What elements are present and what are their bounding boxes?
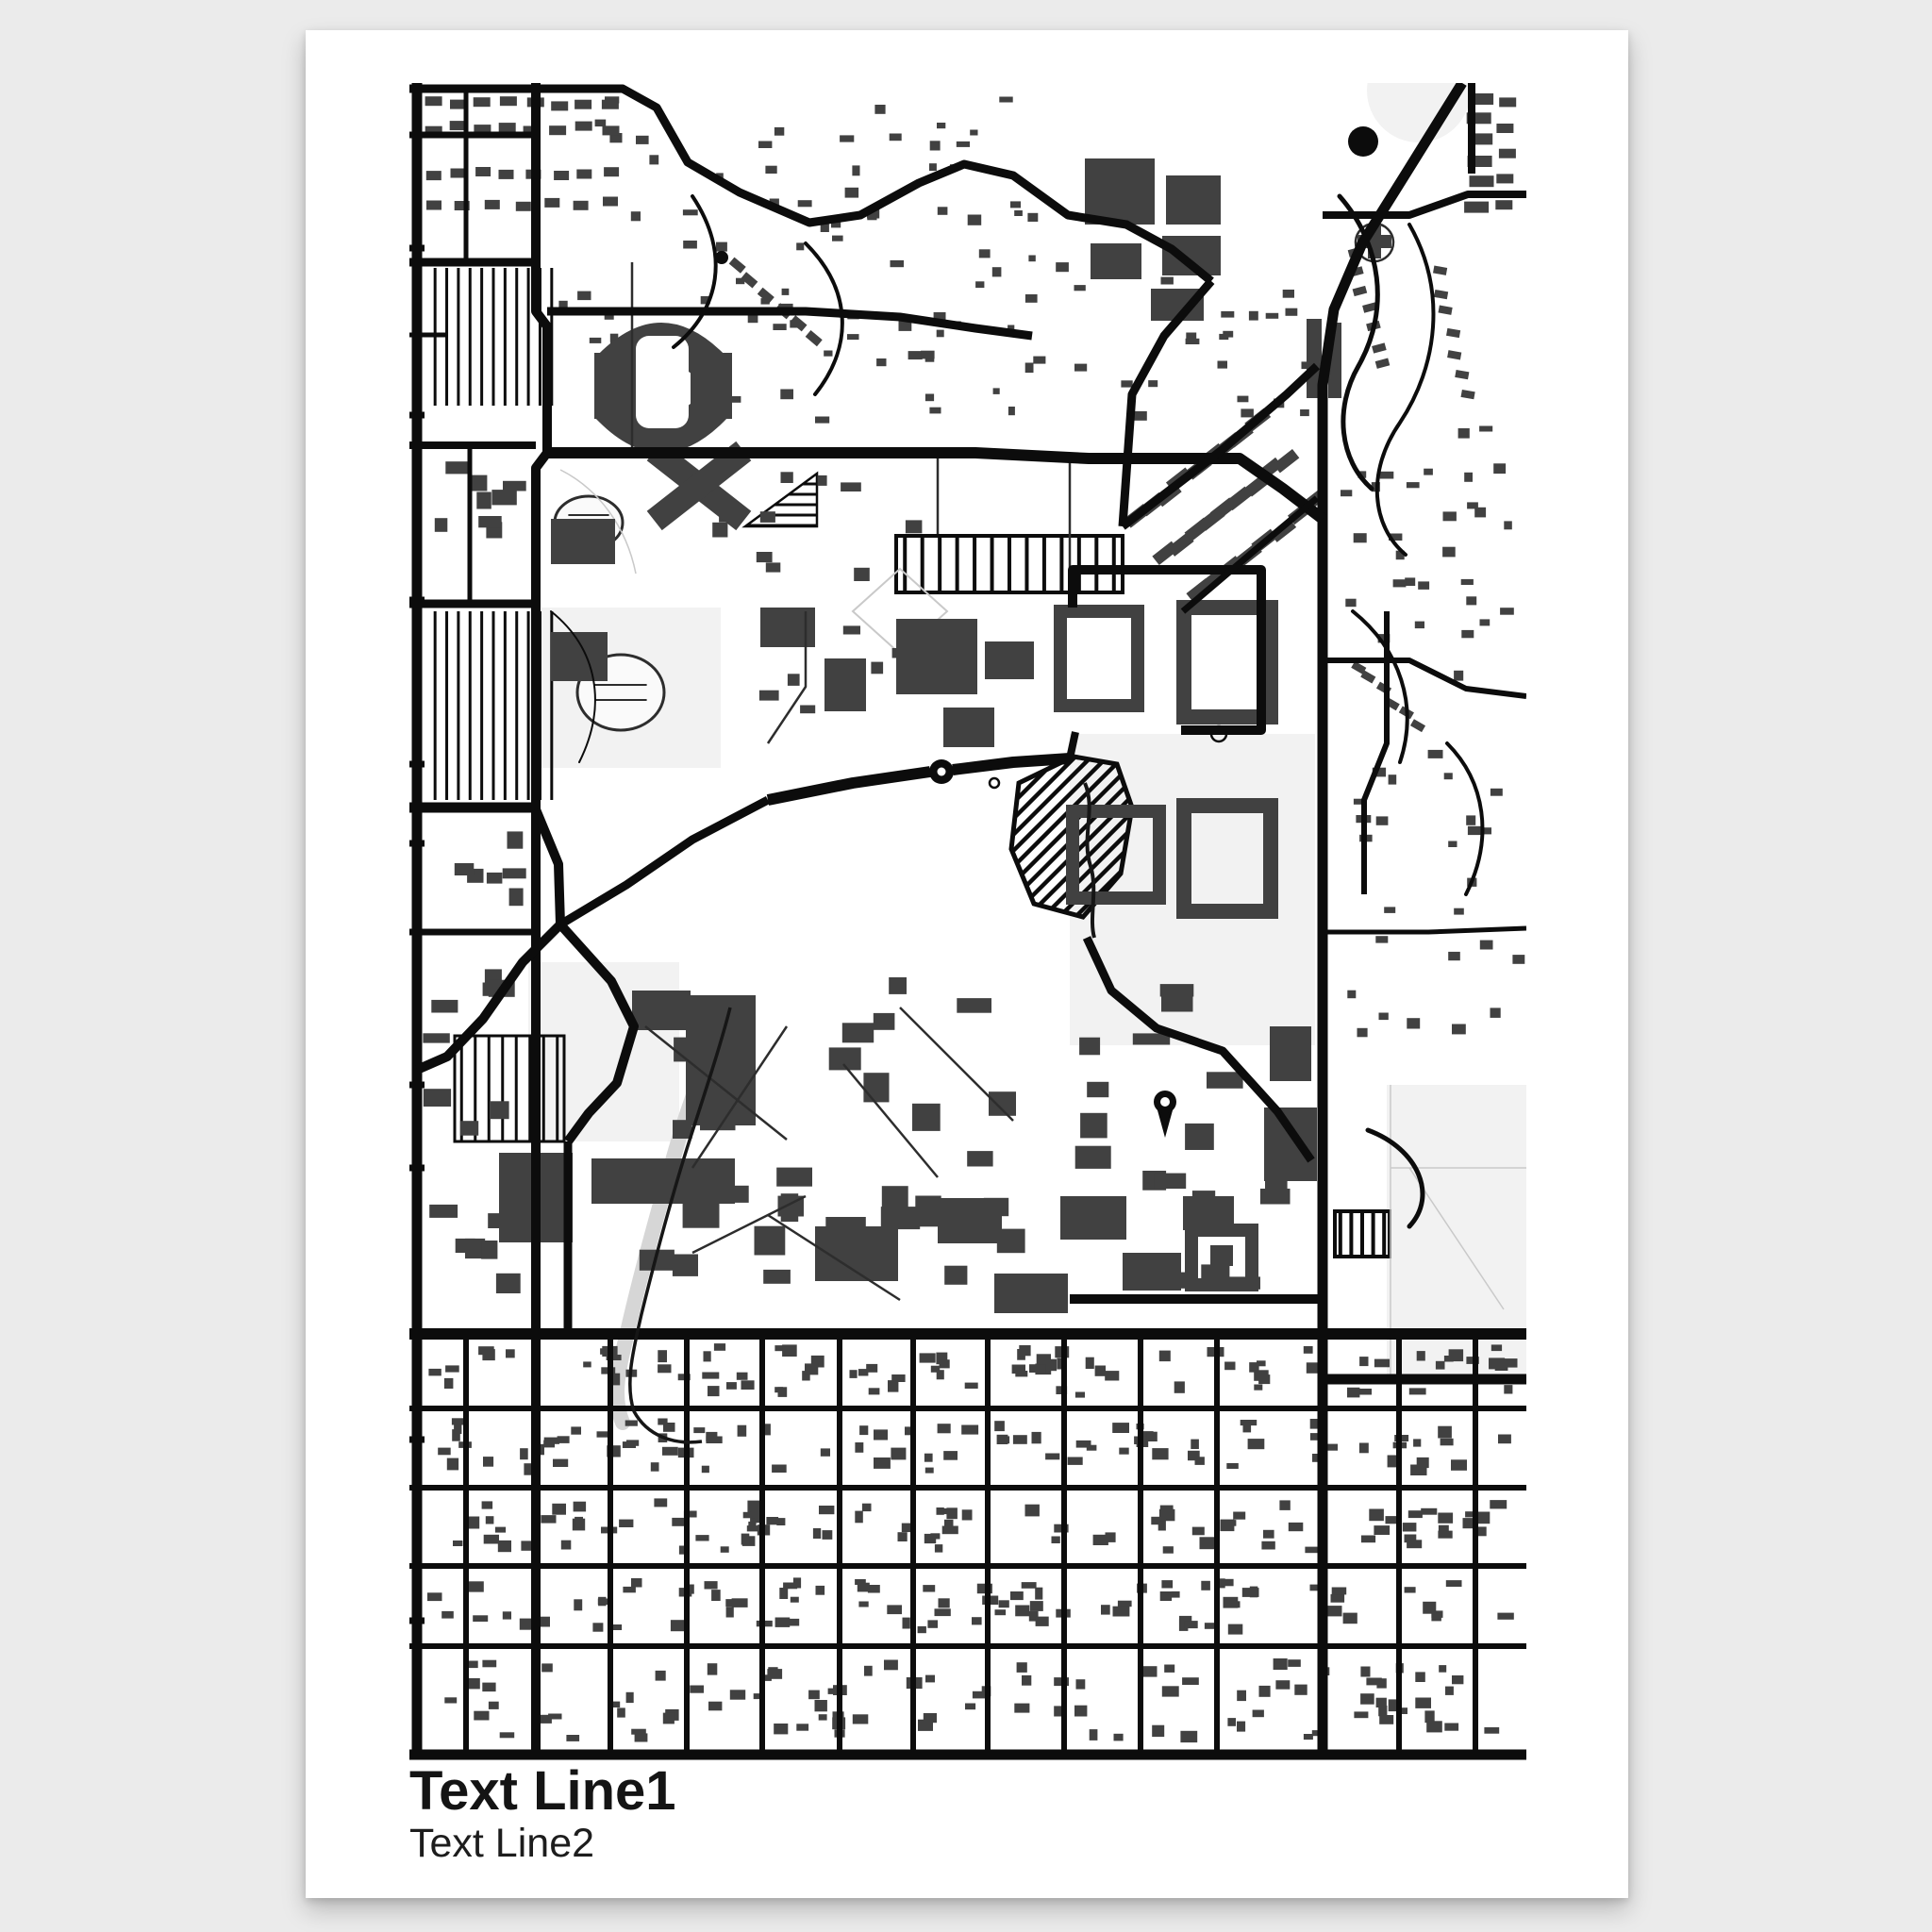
poster: Text Line1 Text Line2 bbox=[306, 30, 1628, 1898]
caption-block: Text Line1 Text Line2 bbox=[409, 1766, 1523, 1865]
campus-map bbox=[409, 83, 1526, 1766]
page-background: { "poster": { "title": "Text Line1", "su… bbox=[0, 0, 1932, 1932]
poster-subtitle: Text Line2 bbox=[409, 1822, 1523, 1865]
poster-title: Text Line1 bbox=[409, 1766, 1523, 1817]
map-container bbox=[409, 83, 1526, 1766]
